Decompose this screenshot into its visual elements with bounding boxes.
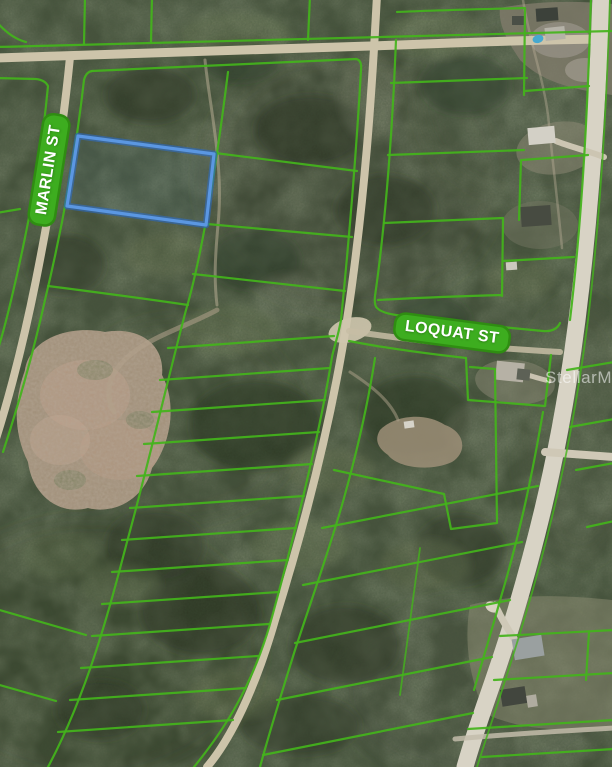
- map-image-layer: [0, 0, 612, 767]
- highlighted-parcel-outline: [67, 136, 214, 225]
- shed: [404, 420, 415, 428]
- building: [527, 126, 555, 145]
- mls-watermark: StellarMLS: [545, 368, 612, 388]
- building: [526, 694, 538, 707]
- shed: [506, 262, 518, 271]
- building: [512, 16, 524, 25]
- building: [516, 368, 530, 380]
- satellite-parcel-map[interactable]: MARLIN ST LOQUAT ST StellarMLS: [0, 0, 612, 767]
- building: [520, 205, 551, 227]
- building: [536, 7, 559, 22]
- side-road-spur: [545, 452, 612, 457]
